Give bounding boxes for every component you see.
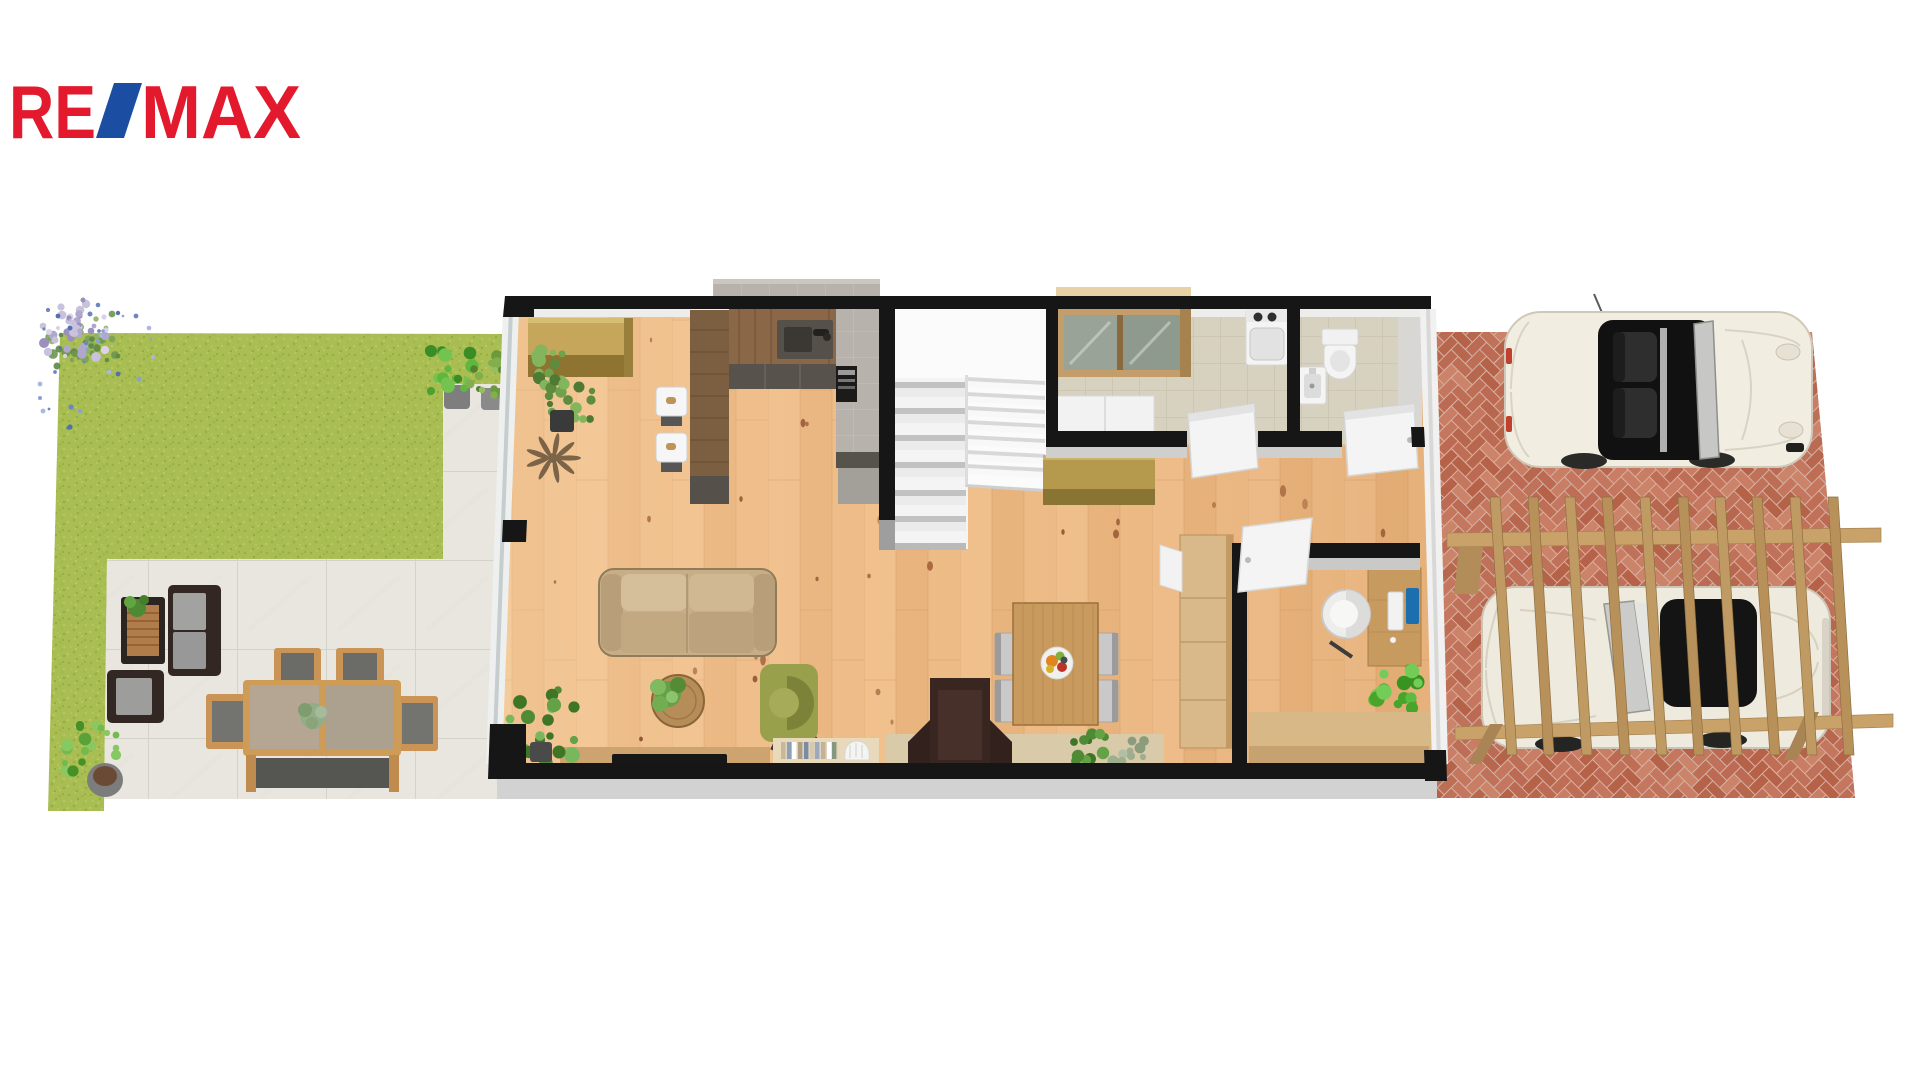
svg-text:RE: RE xyxy=(9,70,96,154)
svg-text:MAX: MAX xyxy=(141,70,301,154)
